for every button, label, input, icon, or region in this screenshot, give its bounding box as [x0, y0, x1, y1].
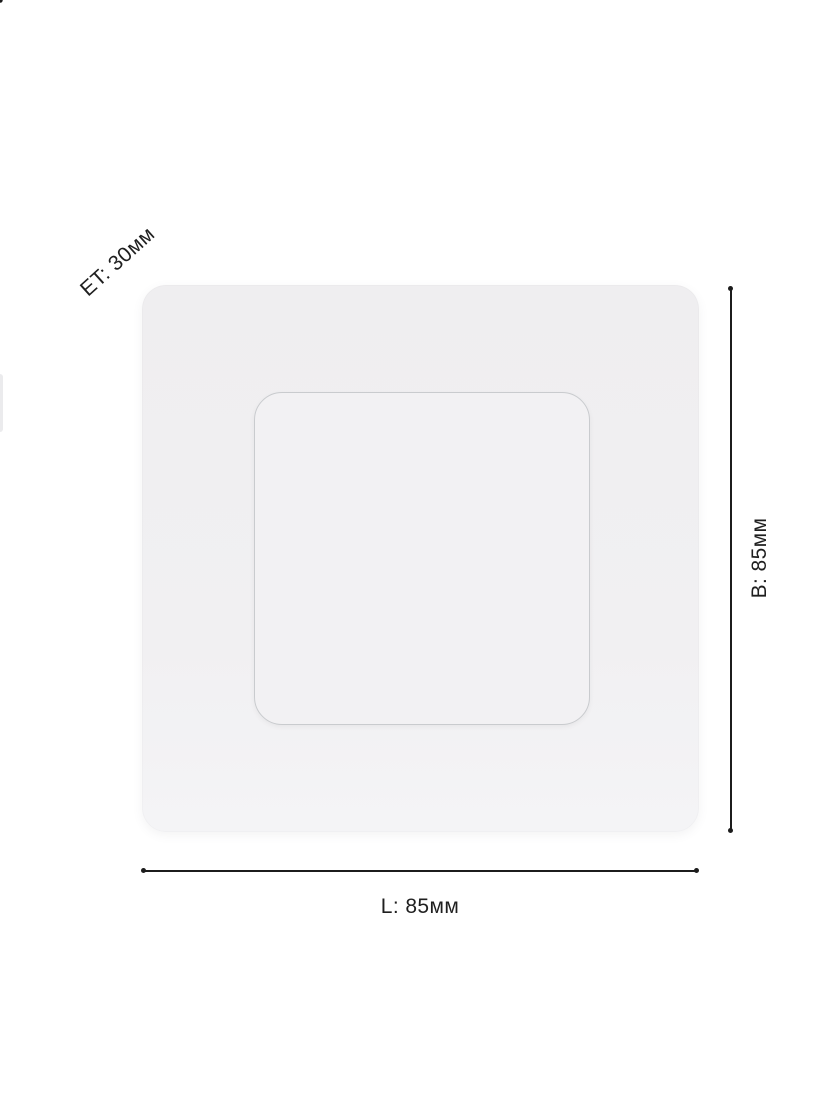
panel-inner-diffuser — [254, 392, 590, 725]
dimension-line-length — [143, 870, 697, 872]
dimension-label-length: L: 85мм — [381, 895, 459, 919]
dimension-line-edge-thickness — [0, 0, 15, 1]
product-image-stage: ET: 30мм B: 85мм L: 85мм — [0, 0, 840, 1120]
dimension-label-edge-thickness: ET: 30мм — [76, 222, 160, 301]
dimension-label-height: B: 85мм — [748, 518, 772, 599]
dimension-line-height — [730, 288, 732, 831]
carousel-adjacent-image-sliver — [0, 374, 3, 432]
